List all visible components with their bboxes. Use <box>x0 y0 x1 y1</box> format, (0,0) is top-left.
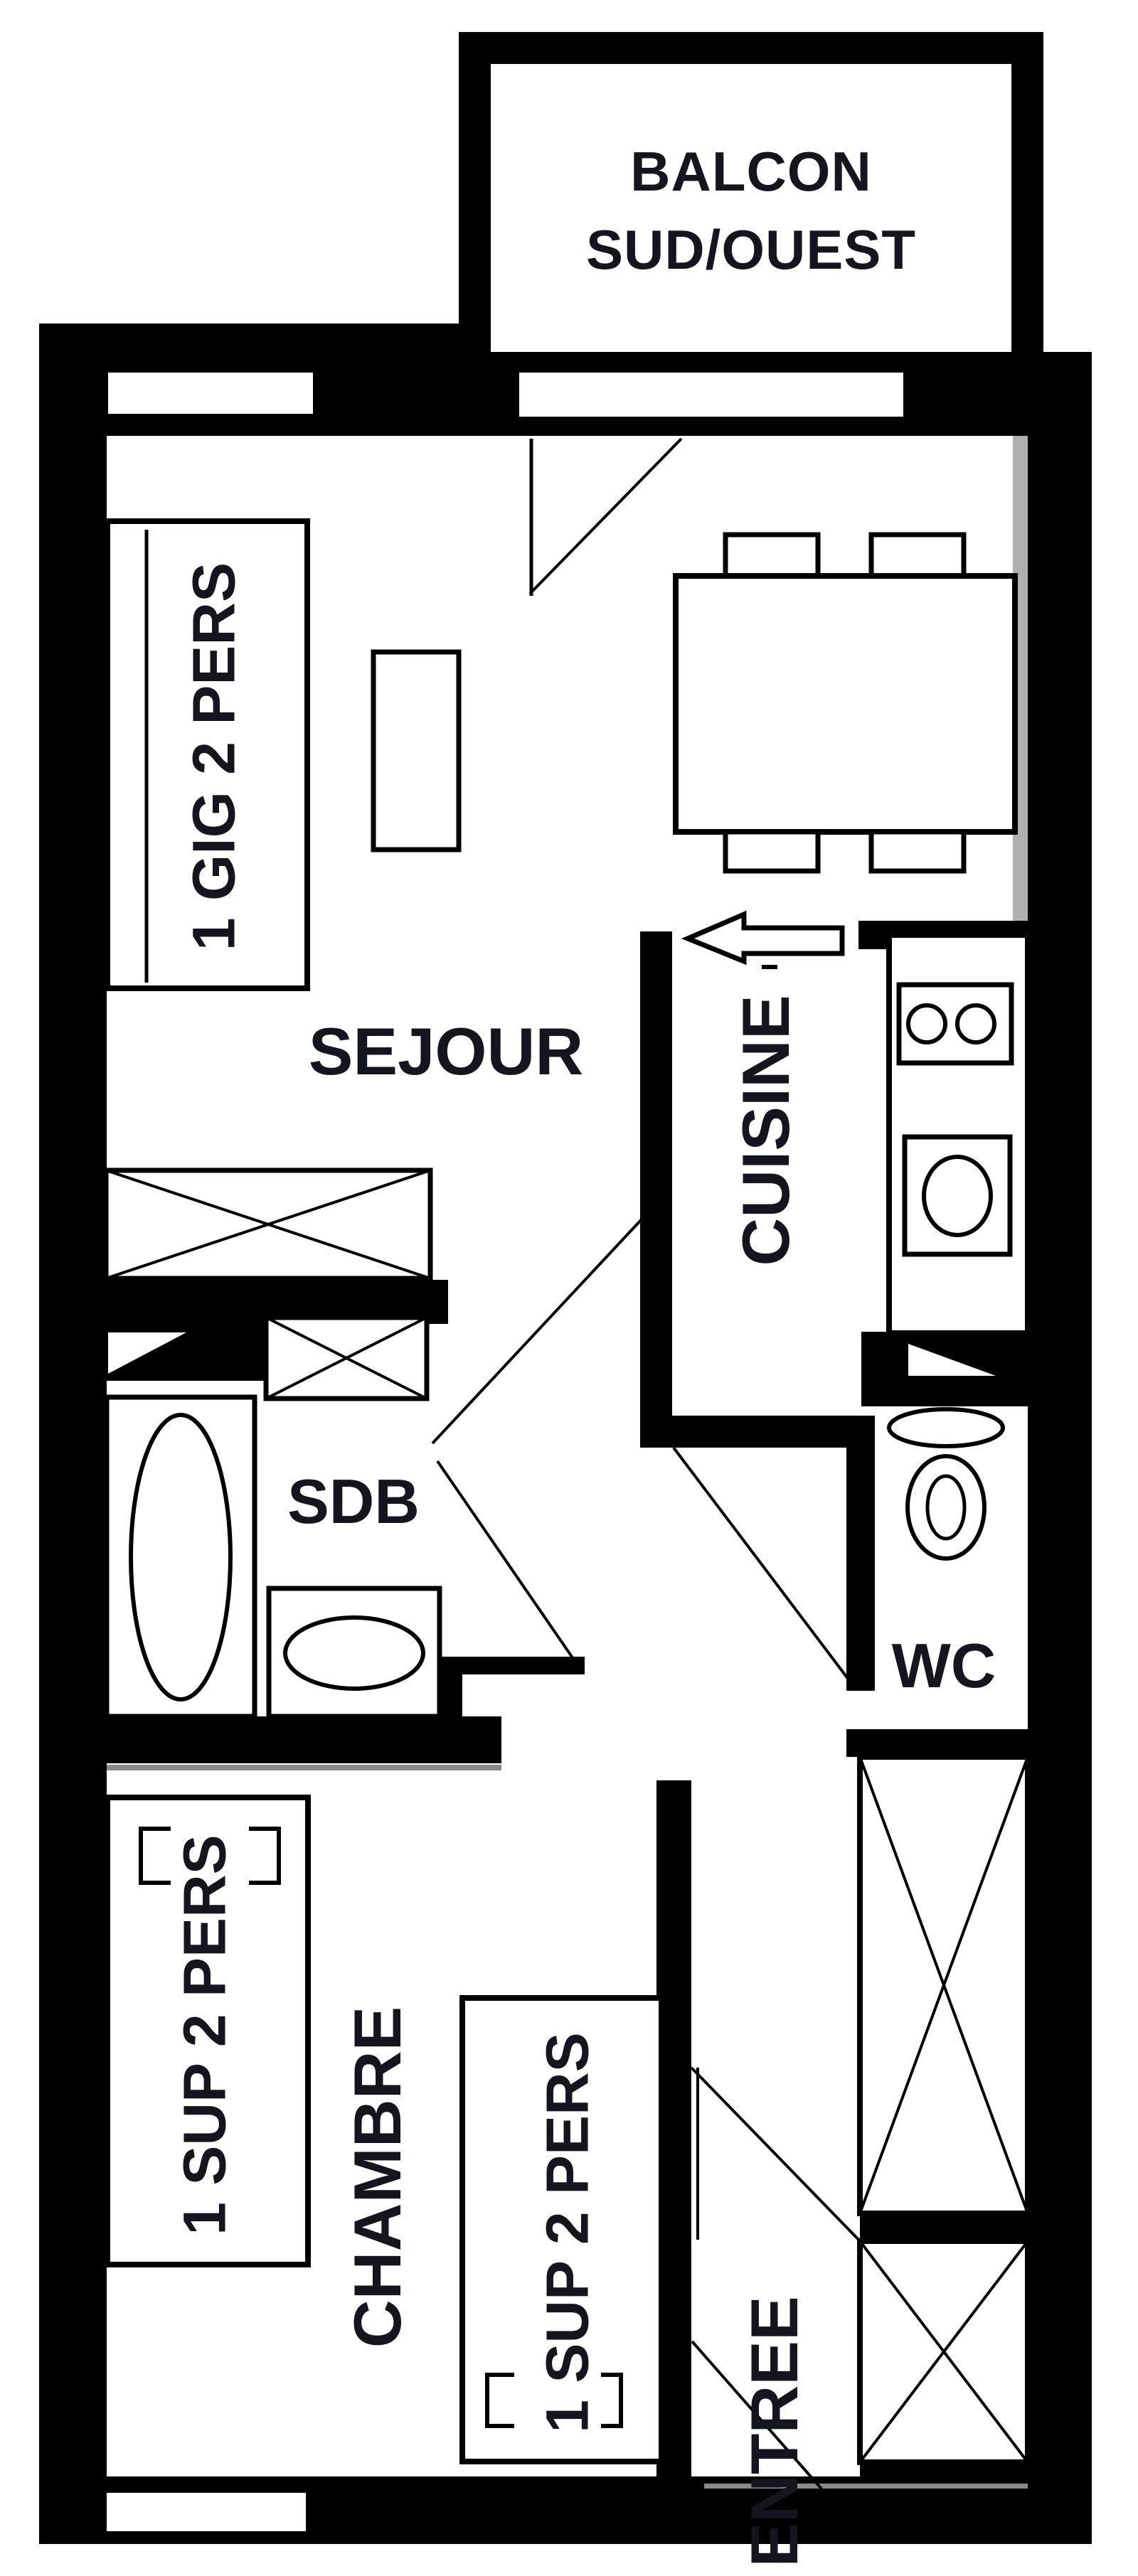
floor-plan: BALCON SUD/OUEST SEJOUR CUISINE SDB WC C… <box>0 0 1138 2576</box>
bedroom-door-swing-line <box>691 2068 863 2245</box>
balcony-top-wall <box>459 32 1043 64</box>
dining-table <box>676 576 1015 832</box>
toilet-tank-icon <box>889 1409 1003 1446</box>
dining-chair <box>871 832 964 871</box>
bathroom-door-swing-line <box>437 1461 573 1659</box>
living-hall-door-swing-line <box>432 1219 642 1443</box>
entry-direction-arrow-icon <box>688 914 842 961</box>
wc-door-swing-line <box>674 1448 855 1688</box>
coffee-table <box>373 652 459 850</box>
dining-chair <box>871 535 964 576</box>
label-living-room: SEJOUR <box>309 1014 584 1089</box>
label-balcony-line1: BALCON <box>630 140 872 203</box>
bedroom-window <box>107 2493 306 2531</box>
wc-left-wall <box>846 1448 875 1691</box>
floor-plan-drawing: BALCON SUD/OUEST SEJOUR CUISINE SDB WC C… <box>0 0 1138 2576</box>
balcony-door-window <box>519 373 903 417</box>
wc-bottom-wall <box>846 1729 1028 1757</box>
label-bedroom: CHAMBRE <box>340 2006 415 2348</box>
washbasin <box>269 1588 440 1716</box>
label-bathroom: SDB <box>287 1466 420 1536</box>
balcony-right-wall <box>1011 32 1043 352</box>
label-entry: ENTREE <box>737 2296 812 2567</box>
label-wc: WC <box>892 1630 996 1701</box>
balcony-door-swing-line <box>530 439 681 594</box>
dining-chair <box>725 832 818 871</box>
closet-divider-wall <box>860 2213 1028 2241</box>
label-bed-left: 1 SUP 2 PERS <box>171 1834 238 2235</box>
closet-bottom-wall <box>860 2462 1028 2494</box>
right-wall <box>1028 436 1092 2544</box>
living-window <box>108 373 313 414</box>
toilet-bowl-icon <box>908 1456 984 1559</box>
dining-chair <box>725 535 818 576</box>
balcony-left-wall <box>459 32 491 327</box>
left-wall <box>39 324 107 2544</box>
wall-shadow-line <box>107 1765 501 1770</box>
label-kitchen: CUISINE <box>728 995 803 1266</box>
label-balcony-line2: SUD/OUEST <box>586 218 916 281</box>
toilet-bowl-inner-icon <box>927 1476 964 1539</box>
hall-wc-top-wall <box>640 1416 875 1448</box>
label-bed-right: 1 SUP 2 PERS <box>533 2032 600 2432</box>
label-sofa-bed: 1 GIG 2 PERS <box>180 562 247 951</box>
kitchen-left-wall <box>640 931 672 1426</box>
